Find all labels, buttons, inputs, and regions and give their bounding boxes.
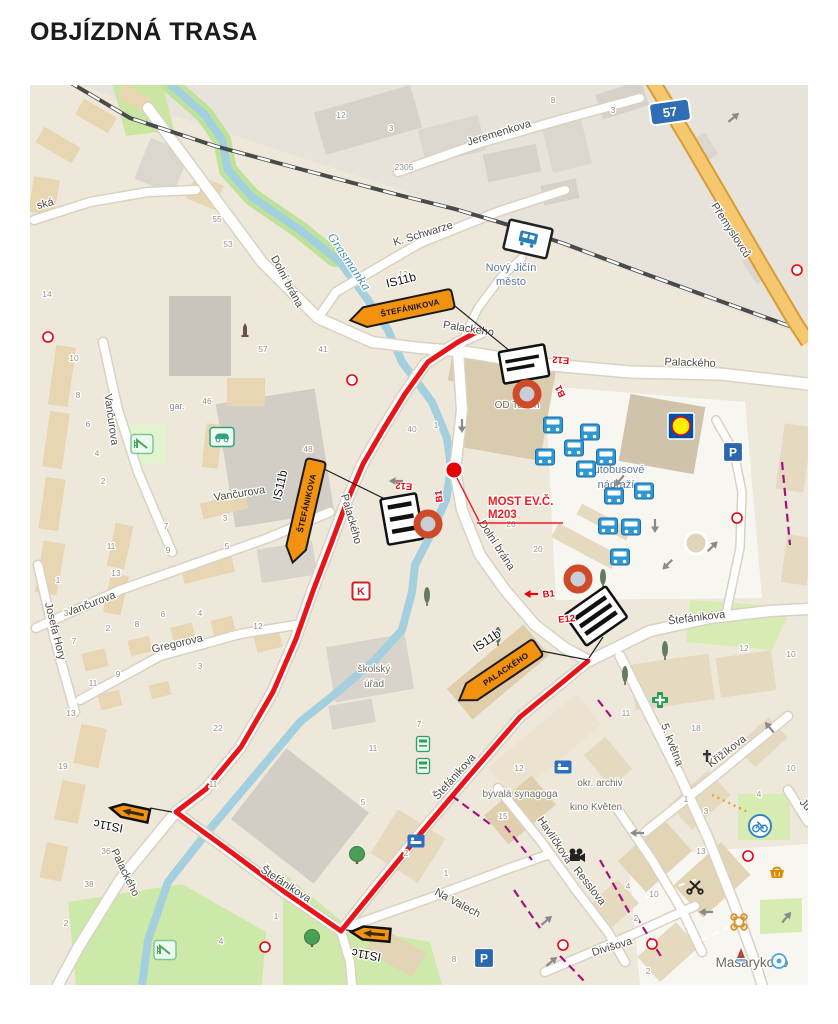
street-label: Palackého — [664, 356, 716, 370]
bus-icon — [581, 424, 600, 440]
parking-letter: P — [729, 446, 737, 460]
map-canvas: JeremenkovaPřemyslovcůK. SchwarzeskáDoln… — [30, 85, 808, 985]
house-number: 7 — [417, 719, 422, 729]
bus-icon — [605, 488, 624, 504]
no-entry-sign — [417, 513, 439, 535]
house-number: 7 — [72, 636, 77, 646]
route-57-number: 57 — [662, 104, 678, 121]
closure-info-sign — [499, 344, 550, 384]
bus-icon — [622, 519, 641, 535]
parking-icon: P — [475, 949, 494, 968]
house-number: 2 — [64, 918, 69, 928]
building — [227, 378, 265, 406]
hotel-icon — [408, 835, 425, 848]
car-service-icon — [210, 428, 234, 447]
signal-circle-icon — [558, 940, 568, 950]
house-number: 20 — [533, 544, 543, 554]
no-entry-sign — [567, 568, 589, 590]
drink-icon — [772, 954, 786, 968]
place-label: úřad — [364, 679, 384, 690]
atm-icon — [417, 737, 430, 752]
closure-code-B1: B1 — [433, 489, 445, 503]
bus-icon — [565, 440, 584, 456]
house-number: 36 — [101, 846, 111, 856]
bridge-closure-point — [446, 462, 463, 479]
house-number: 2 — [646, 966, 651, 976]
bus-icon — [577, 461, 596, 477]
house-number: 22 — [213, 723, 223, 733]
house-number: 4 — [95, 448, 100, 458]
bus-icon — [536, 449, 555, 465]
house-number: 4 — [626, 881, 631, 891]
house-number: 18 — [691, 723, 701, 733]
house-number: 4 — [757, 789, 762, 799]
building — [169, 296, 231, 376]
house-number: 46 — [202, 396, 212, 406]
closure-code-B1: B1 — [542, 588, 556, 600]
house-number: 4 — [219, 936, 224, 946]
house-number: 6 — [161, 609, 166, 619]
bus-icon — [599, 518, 618, 534]
house-number: 55 — [212, 214, 222, 224]
house-number: 5 — [225, 541, 230, 551]
closure-code-E12: E12 — [552, 353, 570, 365]
roundabout — [685, 532, 707, 554]
signal-circle-icon — [647, 939, 657, 949]
bank-letter: K — [357, 586, 365, 598]
signal-circle-icon — [732, 513, 742, 523]
bridge-label-line1: MOST EV.Č. — [488, 495, 553, 508]
place-label: autobusové — [588, 464, 645, 476]
house-number: 4 — [198, 608, 203, 618]
house-number: 10 — [786, 763, 796, 773]
house-number: 2 — [106, 623, 111, 633]
land-zone — [760, 898, 802, 934]
atm-icon — [417, 759, 430, 774]
bank-k-icon: K — [353, 583, 370, 600]
detour-map: JeremenkovaPřemyslovcůK. SchwarzeskáDoln… — [30, 85, 808, 985]
house-number: 11 — [107, 541, 116, 551]
place-label: město — [496, 276, 526, 288]
house-number: 53 — [223, 239, 233, 249]
house-number: 1 — [434, 420, 439, 430]
house-number: 10 — [786, 649, 796, 659]
house-number: 1 — [274, 911, 279, 921]
house-number: 6 — [86, 419, 91, 429]
house-number: 3 — [64, 608, 69, 618]
house-number: 2 — [634, 913, 639, 923]
bridge-label-line2: M203 — [488, 509, 517, 521]
page-title: OBJÍZDNÁ TRASA — [30, 18, 258, 47]
signal-circle-icon — [43, 332, 53, 342]
house-number: 12 — [739, 643, 749, 653]
house-number: 13 — [66, 708, 76, 718]
signal-circle-icon — [260, 942, 270, 952]
house-number: 14 — [42, 289, 52, 299]
house-number: 15 — [498, 811, 508, 821]
house-number: 8 — [135, 619, 140, 629]
lidl-icon — [668, 413, 694, 439]
house-number: 9 — [166, 545, 171, 555]
house-number: 40 — [407, 424, 417, 434]
house-number: 41 — [318, 344, 328, 354]
playground-icon — [131, 435, 153, 454]
signal-circle-icon — [792, 265, 802, 275]
house-number: 8 — [76, 390, 81, 400]
house-number: 3 — [611, 105, 616, 115]
house-number: 8 — [452, 954, 457, 964]
no-entry-sign — [516, 383, 538, 405]
house-number: 13 — [111, 568, 121, 578]
house-number: 19 — [58, 761, 68, 771]
place-label: kino Květen — [570, 802, 622, 813]
house-number: 2 — [404, 848, 409, 858]
house-number: 5 — [361, 797, 366, 807]
parking-letter: P — [480, 952, 488, 966]
house-number: 3 — [389, 123, 394, 133]
house-number: 12 — [253, 621, 263, 631]
place-label: školský — [358, 664, 391, 675]
house-number: 13 — [696, 846, 706, 856]
closure-code-E12: E12 — [558, 613, 576, 626]
house-number: 10 — [649, 889, 659, 899]
parking-icon: P — [724, 443, 743, 462]
house-number: 11 — [369, 743, 378, 753]
page: OBJÍZDNÁ TRASA JeremenkovaPřemyslovcůK. … — [0, 0, 838, 1024]
hotel-icon — [555, 761, 572, 774]
house-number: 3 — [223, 513, 228, 523]
place-label: okr. archiv — [577, 778, 623, 789]
house-number: 7 — [164, 521, 169, 531]
place-label: bývalá synagoga — [482, 789, 557, 800]
house-number: 2 — [101, 476, 106, 486]
bus-icon — [544, 417, 563, 433]
house-number: 12 — [336, 110, 346, 120]
house-number: 10 — [69, 353, 79, 363]
house-number: 1 — [56, 575, 61, 585]
playground-icon — [154, 941, 176, 960]
house-number: 2305 — [395, 162, 414, 172]
house-number: 8 — [551, 95, 556, 105]
bus-icon — [597, 449, 616, 465]
place-label: gar. — [169, 401, 184, 411]
bus-icon — [635, 483, 654, 499]
building — [715, 650, 776, 697]
house-number: 57 — [258, 344, 268, 354]
bus-icon — [611, 549, 630, 565]
house-number: 11 — [622, 708, 631, 718]
house-number: 11 — [209, 779, 218, 789]
bike-icon — [749, 815, 771, 837]
house-number: 1 — [684, 794, 689, 804]
house-number: 48 — [303, 444, 313, 454]
house-number: 1 — [444, 868, 449, 878]
house-number: 11 — [89, 678, 98, 688]
house-number: 9 — [116, 669, 121, 679]
route-57-shield: 57 — [649, 98, 692, 125]
signal-circle-icon — [347, 375, 357, 385]
place-label: Nový Jičín — [486, 262, 537, 274]
house-number: 3 — [704, 806, 709, 816]
house-number: 38 — [84, 879, 94, 889]
signal-circle-icon — [743, 851, 753, 861]
house-number: 12 — [514, 763, 524, 773]
house-number: 3 — [198, 661, 203, 671]
